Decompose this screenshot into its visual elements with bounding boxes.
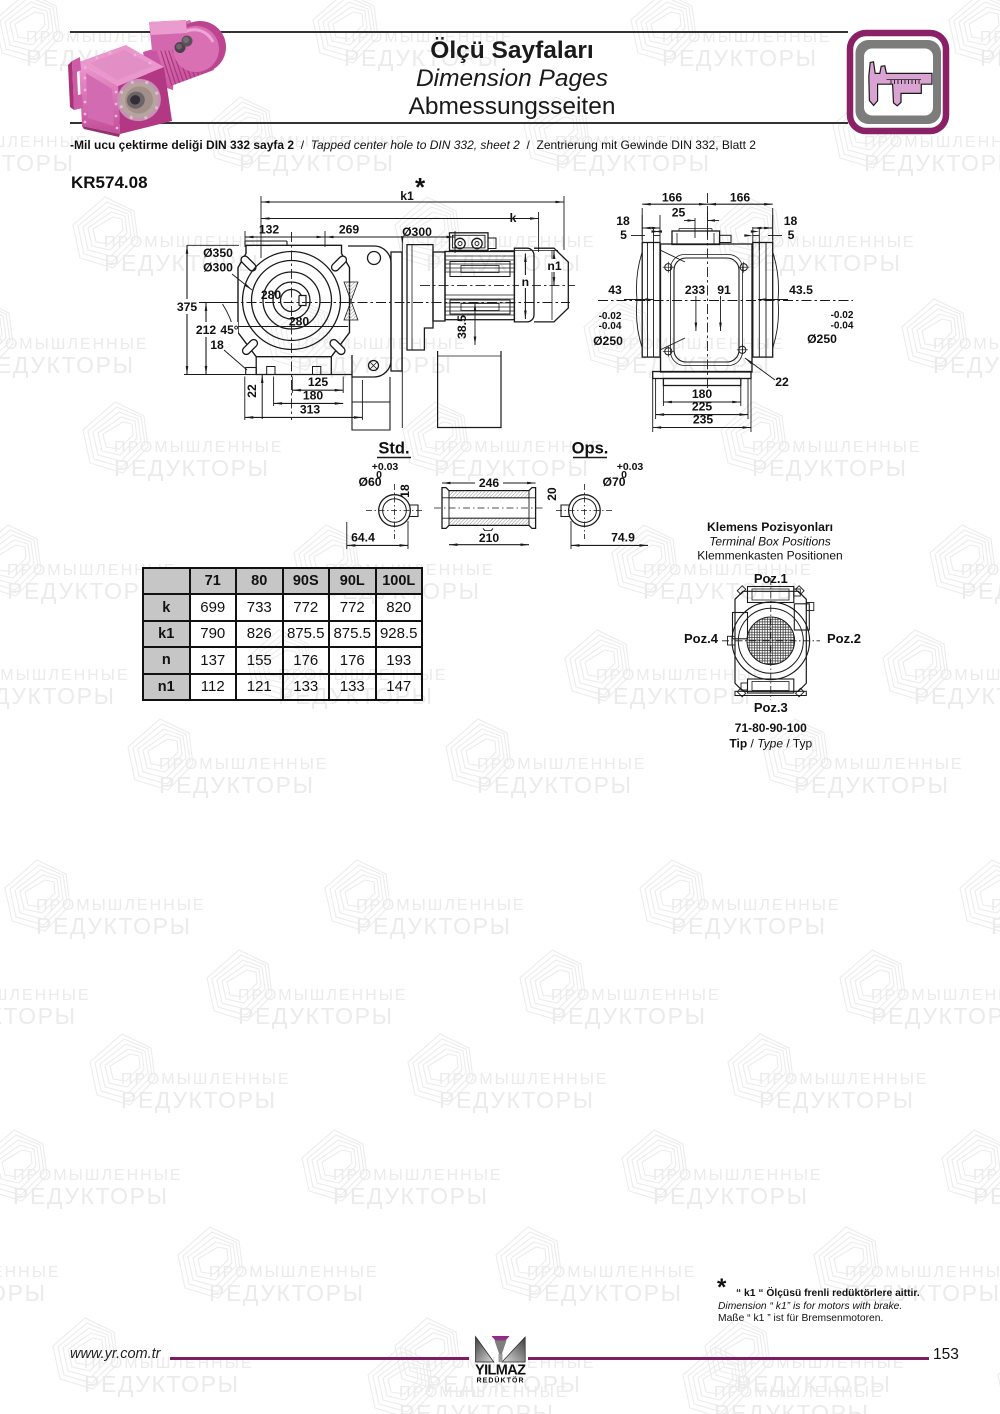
- svg-text:22: 22: [775, 375, 789, 389]
- svg-text:45°: 45°: [220, 323, 238, 337]
- svg-text:74.9: 74.9: [611, 531, 635, 545]
- svg-text:Poz.4: Poz.4: [684, 631, 719, 646]
- svg-text:*: *: [415, 172, 426, 202]
- svg-text:5: 5: [620, 228, 627, 242]
- svg-text:Ø300: Ø300: [402, 225, 432, 239]
- svg-text:71-80-90-100: 71-80-90-100: [735, 721, 807, 735]
- svg-text:38.5: 38.5: [455, 315, 469, 339]
- svg-text:43.5: 43.5: [789, 283, 813, 297]
- svg-text:246: 246: [479, 476, 500, 490]
- svg-text:235: 235: [693, 413, 714, 427]
- svg-text:212: 212: [196, 323, 217, 337]
- svg-text:k: k: [510, 211, 517, 225]
- svg-text:18: 18: [210, 338, 224, 352]
- svg-text:Ø250: Ø250: [807, 332, 837, 346]
- svg-text:n1: n1: [547, 259, 561, 273]
- svg-text:91: 91: [717, 283, 731, 297]
- svg-text:166: 166: [662, 191, 683, 205]
- svg-text:375: 375: [177, 300, 198, 314]
- svg-text:Terminal Box Positions: Terminal Box Positions: [709, 535, 831, 549]
- svg-text:18: 18: [784, 214, 798, 228]
- svg-text:125: 125: [308, 375, 329, 389]
- svg-text:Klemmenkasten Positionen: Klemmenkasten Positionen: [697, 549, 842, 563]
- svg-text:Ops.: Ops.: [572, 440, 609, 458]
- svg-text:Ø250: Ø250: [593, 334, 623, 348]
- svg-text:180: 180: [303, 389, 324, 403]
- svg-text:280: 280: [289, 315, 310, 329]
- svg-text:313: 313: [300, 403, 321, 417]
- svg-text:5: 5: [788, 228, 795, 242]
- svg-text:20: 20: [545, 487, 559, 501]
- svg-text:0: 0: [621, 469, 627, 481]
- svg-text:64.4: 64.4: [351, 531, 375, 545]
- svg-text:Ø350: Ø350: [203, 246, 233, 260]
- svg-text:Klemens Pozisyonları: Klemens Pozisyonları: [707, 520, 833, 534]
- svg-text:n: n: [522, 275, 529, 289]
- svg-text:Ø300: Ø300: [203, 261, 233, 275]
- svg-text:132: 132: [259, 223, 280, 237]
- svg-text:k1: k1: [400, 189, 414, 203]
- svg-text:-0.04: -0.04: [831, 321, 854, 332]
- svg-text:22: 22: [245, 384, 259, 398]
- svg-text:280: 280: [261, 288, 282, 302]
- svg-text:18: 18: [398, 484, 412, 498]
- svg-text:210: 210: [479, 531, 500, 545]
- svg-text:233: 233: [685, 283, 706, 297]
- svg-text:225: 225: [692, 400, 713, 414]
- svg-text:-0.02: -0.02: [831, 310, 854, 321]
- svg-text:25: 25: [672, 206, 686, 220]
- svg-text:Poz.2: Poz.2: [827, 631, 861, 646]
- svg-text:166: 166: [730, 191, 751, 205]
- svg-text:43: 43: [608, 283, 622, 297]
- svg-text:Tip / Type / Typ: Tip / Type / Typ: [729, 737, 812, 751]
- svg-text:Std.: Std.: [378, 440, 409, 458]
- svg-text:0: 0: [376, 469, 382, 481]
- svg-text:18: 18: [616, 214, 630, 228]
- svg-text:269: 269: [339, 223, 360, 237]
- svg-text:Poz.3: Poz.3: [754, 700, 788, 715]
- svg-text:-0.04: -0.04: [599, 321, 622, 332]
